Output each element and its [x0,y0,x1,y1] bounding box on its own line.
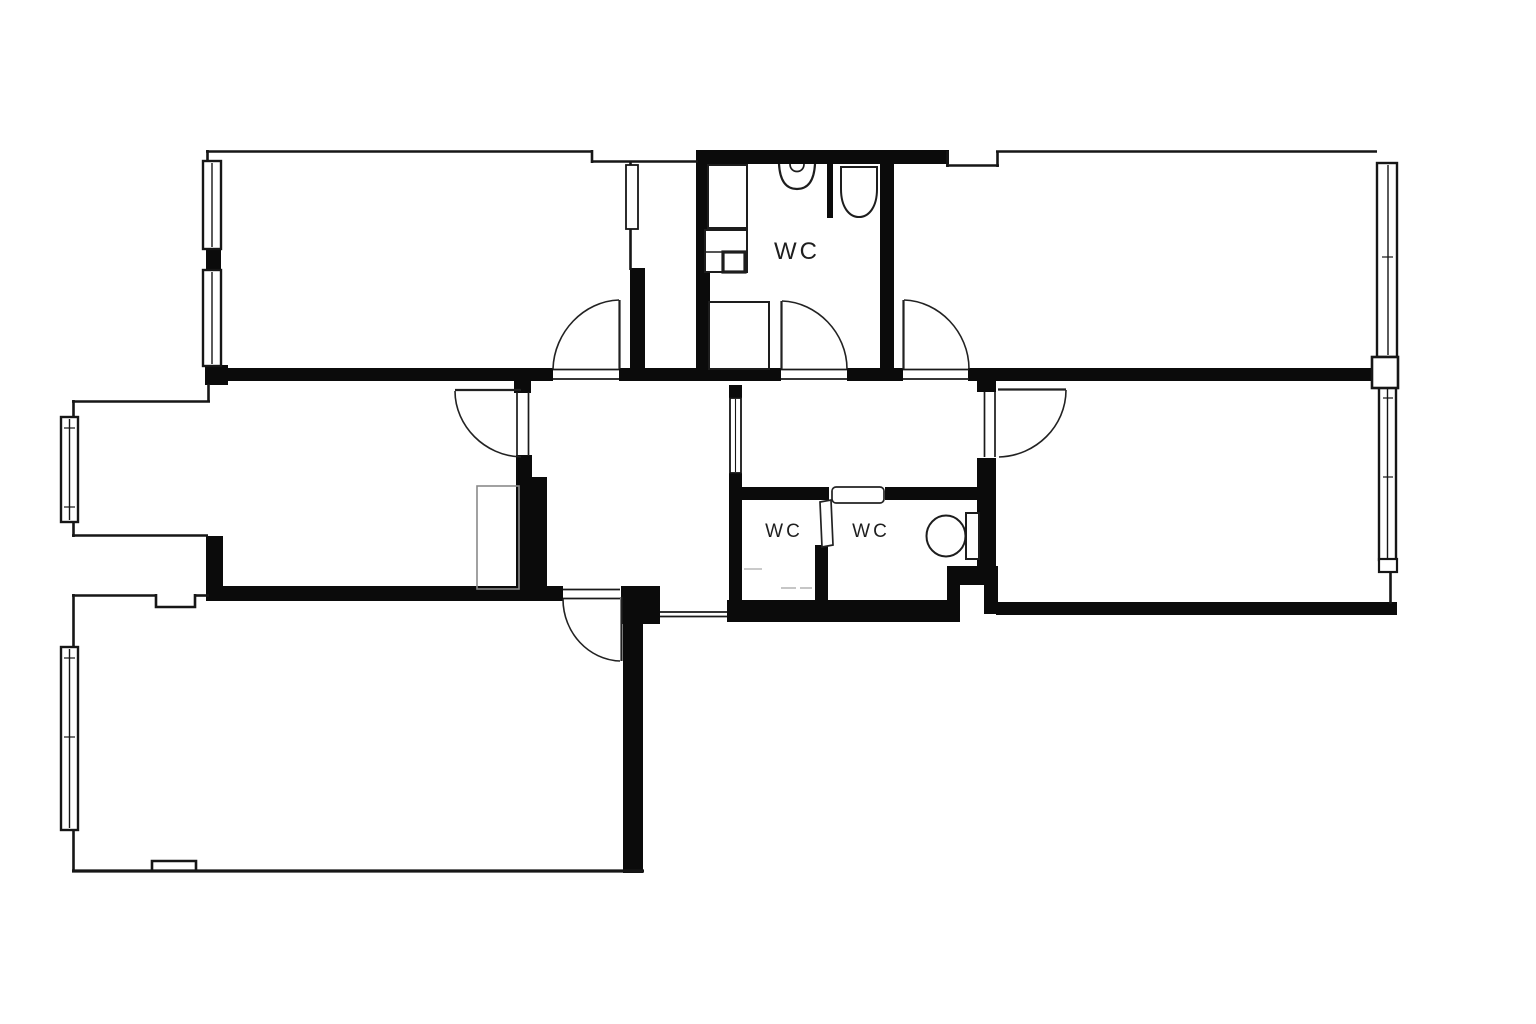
toilet-wc-right [927,513,980,559]
floor-plan-canvas: WC WC WC [0,0,1536,1024]
wall-wc-right-top [885,487,977,500]
wall-bl-top-notch [156,594,195,607]
window-right-room [1379,387,1396,560]
wall-main-h1a [218,368,553,381]
door-bathroom [782,301,848,369]
window-pier-right [1372,357,1398,388]
label-bathroom-wc: WC [767,238,827,266]
wall-step-d [984,585,998,614]
closet-outline [477,486,519,589]
wc-left-faint-marks [744,569,812,588]
door-midleft-room [455,390,521,457]
wall-v2 [623,600,643,873]
window-topleft-1 [203,161,221,249]
wall-wc-divider [815,545,828,613]
wall-shaft [630,268,645,381]
window-pier-right-bottom [1379,559,1397,572]
toilet-bathroom [841,167,877,217]
door-topleft-room [553,300,620,369]
vanity-unit [705,230,747,272]
toilet-cistern [966,513,979,559]
label-wc-small-right: WC [848,521,894,543]
door-topright-room [904,300,970,369]
wall-bathroom-top [696,150,881,164]
floor-plan-drawing [0,0,1536,1024]
wall-bathroom-stub [827,152,833,218]
window-midleft [61,417,78,522]
window-topleft-2 [203,270,221,366]
wall-pier5 [977,368,996,392]
wall-h4-bottom-right [996,602,1397,615]
label-wc-small-left: WC [761,521,807,543]
washbasin [779,164,815,189]
hall-partition-glazed [730,398,741,473]
window-topright [1377,163,1397,357]
wall-step-v [947,585,960,600]
wall-hall-bottom [727,600,960,622]
cabinet-tall [708,165,747,228]
door-wc-left-folding [820,500,833,547]
wall-topright-top [893,150,949,164]
wall-main-h1d [968,368,1381,381]
wall-bathroom-right [880,150,894,381]
toilet-bowl [927,516,966,557]
wall-main-h1c [847,368,903,381]
sink-basin-square [723,252,745,272]
shaft-vent-window [626,165,638,229]
wall-v5-stub [729,385,742,398]
wall-window-chunk [206,248,221,270]
wall-ml-connector [206,536,223,601]
wall-v1b [532,477,547,601]
shower-tray [709,302,769,369]
door-wc-right-pocket [832,487,884,503]
window-bottomleft [61,647,78,830]
door-right-room [998,390,1066,458]
door-bottomleft-room [563,597,622,661]
wall-wc-left-top [736,487,829,500]
